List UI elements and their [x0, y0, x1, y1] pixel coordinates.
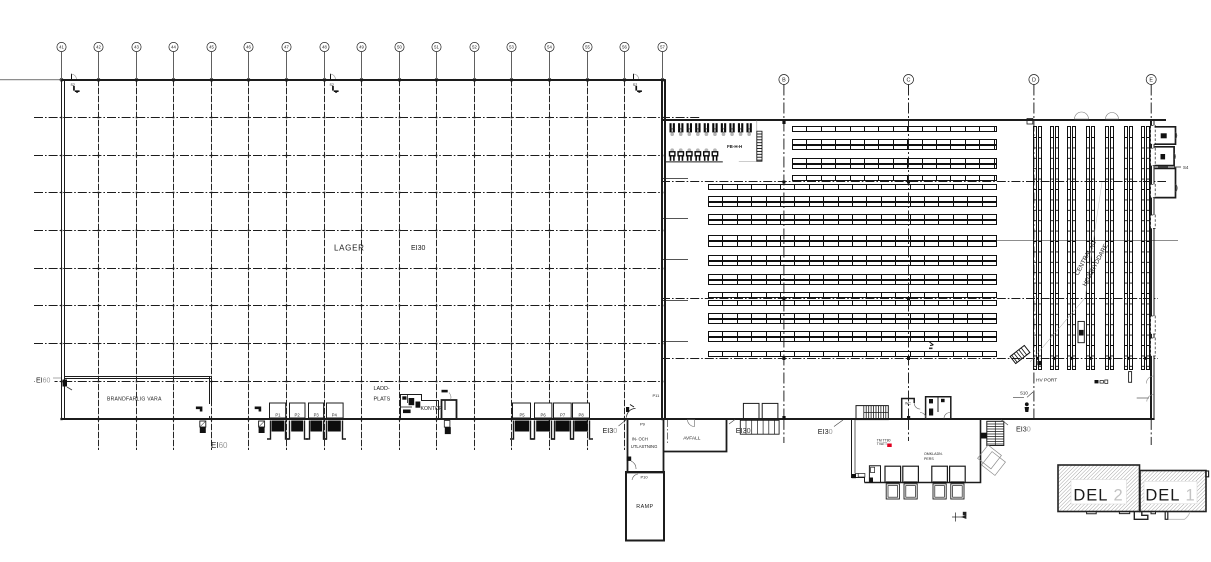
- svg-text:EI30: EI30: [603, 426, 618, 435]
- svg-text:P10: P10: [641, 474, 649, 479]
- svg-text:51: 51: [434, 45, 439, 50]
- svg-text:LAGER: LAGER: [334, 244, 365, 253]
- svg-text:P8: P8: [579, 412, 585, 417]
- svg-text:UTLASTNING: UTLASTNING: [631, 444, 658, 449]
- svg-text:46: 46: [246, 45, 251, 50]
- svg-text:49: 49: [359, 45, 364, 50]
- svg-text:D: D: [1032, 78, 1036, 84]
- svg-text:55: 55: [585, 45, 590, 50]
- svg-text:54: 54: [547, 45, 552, 50]
- svg-text:50: 50: [397, 45, 402, 50]
- svg-text:52: 52: [472, 45, 477, 50]
- svg-text:PERS: PERS: [924, 457, 934, 461]
- svg-text:BRANDFARLIG VARA: BRANDFARLIG VARA: [107, 397, 162, 403]
- svg-text:S4: S4: [1183, 165, 1189, 170]
- svg-text:P11: P11: [653, 393, 661, 398]
- svg-text:PLATS: PLATS: [374, 397, 391, 403]
- svg-text:TVATT: TVATT: [877, 442, 887, 446]
- svg-text:P7: P7: [560, 412, 566, 417]
- svg-text:FB-H-H: FB-H-H: [727, 144, 742, 149]
- svg-text:42: 42: [96, 45, 101, 50]
- svg-text:EI30: EI30: [1016, 425, 1031, 434]
- svg-text:HV PORT: HV PORT: [1036, 378, 1057, 384]
- svg-text:OMKLADN.: OMKLADN.: [924, 452, 943, 456]
- svg-text:41: 41: [59, 45, 64, 50]
- svg-text:DEL 2: DEL 2: [1073, 487, 1123, 505]
- svg-text:53: 53: [509, 45, 514, 50]
- svg-text:RAMP: RAMP: [636, 504, 653, 510]
- svg-text:P3: P3: [314, 412, 320, 417]
- svg-text:P5: P5: [519, 412, 525, 417]
- svg-text:E: E: [1149, 78, 1153, 84]
- svg-text:P6: P6: [541, 412, 547, 417]
- svg-text:P9: P9: [640, 422, 646, 427]
- svg-text:IN- OCH: IN- OCH: [632, 437, 648, 442]
- svg-text:C: C: [907, 78, 911, 84]
- svg-text:EI60: EI60: [211, 441, 228, 450]
- svg-text:57: 57: [660, 45, 665, 50]
- svg-text:B: B: [782, 78, 786, 84]
- svg-text:AVFALL: AVFALL: [683, 435, 701, 441]
- svg-text:P2: P2: [295, 412, 301, 417]
- svg-text:56: 56: [622, 45, 627, 50]
- svg-text:47: 47: [284, 45, 289, 50]
- svg-text:KONTOR: KONTOR: [421, 406, 443, 412]
- svg-text:P1: P1: [275, 412, 281, 417]
- svg-text:EI30: EI30: [736, 426, 751, 435]
- svg-text:DEL 1: DEL 1: [1145, 487, 1195, 505]
- svg-text:EI30: EI30: [411, 245, 426, 252]
- svg-text:LADD-: LADD-: [374, 386, 390, 392]
- svg-text:P4: P4: [332, 412, 338, 417]
- svg-text:WC: WC: [905, 402, 911, 406]
- svg-text:43: 43: [134, 45, 139, 50]
- svg-text:EI30: EI30: [818, 427, 833, 436]
- svg-text:44: 44: [171, 45, 176, 50]
- svg-text:48: 48: [322, 45, 327, 50]
- svg-text:45: 45: [209, 45, 214, 50]
- svg-text:S10: S10: [1020, 391, 1028, 396]
- svg-text:EI60: EI60: [36, 378, 51, 385]
